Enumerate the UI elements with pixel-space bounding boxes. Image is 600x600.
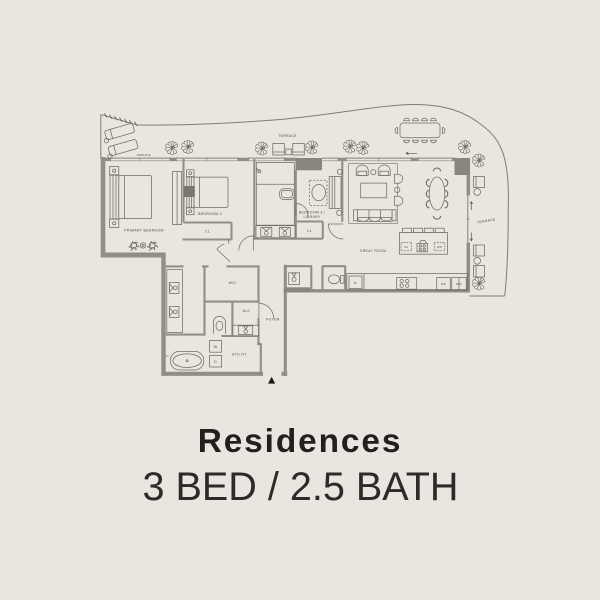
svg-text:BEDROOM 2: BEDROOM 2 (198, 212, 222, 216)
svg-text:PRIMARY BEDROOM: PRIMARY BEDROOM (124, 229, 163, 233)
svg-text:W: W (214, 345, 218, 349)
svg-text:WR: WR (441, 282, 446, 286)
svg-text:FOYER: FOYER (266, 318, 280, 322)
svg-text:D: D (214, 360, 217, 364)
svg-text:P: P (354, 280, 357, 285)
svg-text:DW: DW (437, 245, 442, 249)
svg-text:LIBRARY: LIBRARY (303, 215, 320, 219)
svg-text:3 BED / 2.5 BATH: 3 BED / 2.5 BATH (142, 465, 458, 509)
svg-text:WIC: WIC (229, 281, 237, 285)
svg-text:TERRACE: TERRACE (136, 153, 151, 157)
svg-text:CL: CL (205, 229, 210, 233)
svg-text:REF: REF (456, 282, 462, 286)
svg-text:UTILITY: UTILITY (232, 352, 247, 356)
svg-text:CL: CL (307, 229, 312, 233)
svg-text:BEDROOM 3 /: BEDROOM 3 / (299, 210, 325, 214)
svg-text:TERRACE: TERRACE (278, 134, 297, 138)
svg-text:SU: SU (404, 245, 408, 249)
svg-text:ALC: ALC (243, 309, 251, 313)
svg-text:GREAT ROOM: GREAT ROOM (360, 249, 387, 253)
svg-text:Residences: Residences (198, 423, 403, 460)
